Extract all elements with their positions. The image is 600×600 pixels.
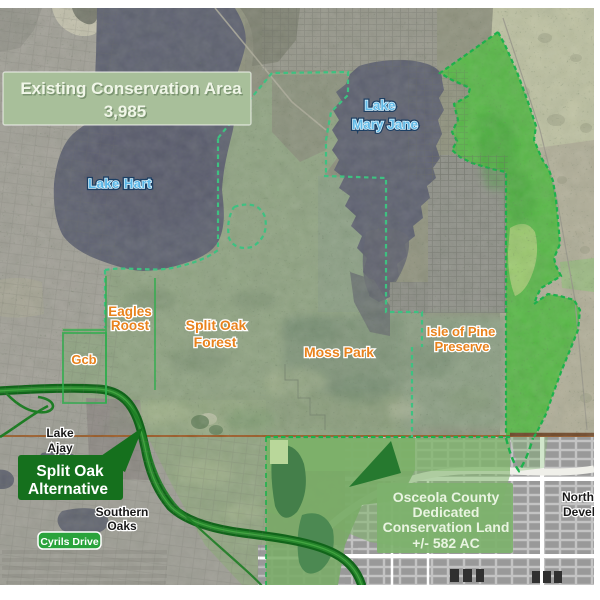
- svg-text:Oaks: Oaks: [107, 519, 137, 533]
- svg-text:Lake Hart: Lake Hart: [88, 176, 152, 191]
- svg-text:3,985: 3,985: [104, 102, 147, 121]
- svg-text:Forest: Forest: [194, 334, 237, 350]
- svg-text:Moss Park: Moss Park: [304, 344, 374, 360]
- svg-text:Cyrils Drive: Cyrils Drive: [40, 536, 99, 548]
- svg-text:Eagles: Eagles: [108, 304, 152, 319]
- svg-text:Ajay: Ajay: [47, 441, 73, 455]
- svg-text:Preserve: Preserve: [435, 339, 490, 354]
- svg-text:Mary Jane: Mary Jane: [352, 117, 419, 132]
- svg-text:Gcb: Gcb: [71, 352, 96, 367]
- svg-text:Osceola County: Osceola County: [393, 489, 500, 505]
- svg-text:Existing Conservation Area: Existing Conservation Area: [20, 79, 242, 98]
- svg-text:+/- 582 AC: +/- 582 AC: [412, 535, 480, 551]
- svg-text:Lake: Lake: [365, 98, 396, 113]
- svg-text:Split Oak: Split Oak: [186, 317, 247, 333]
- svg-text:Split Oak: Split Oak: [36, 463, 104, 480]
- svg-text:Roost: Roost: [111, 318, 150, 333]
- svg-text:Lake: Lake: [46, 426, 74, 440]
- svg-text:Conservation Land: Conservation Land: [383, 519, 510, 535]
- svg-text:Southern: Southern: [96, 505, 149, 519]
- svg-text:Dedicated: Dedicated: [413, 504, 480, 520]
- svg-text:Alternative: Alternative: [28, 481, 108, 498]
- svg-text:Isle of Pine: Isle of Pine: [427, 324, 496, 339]
